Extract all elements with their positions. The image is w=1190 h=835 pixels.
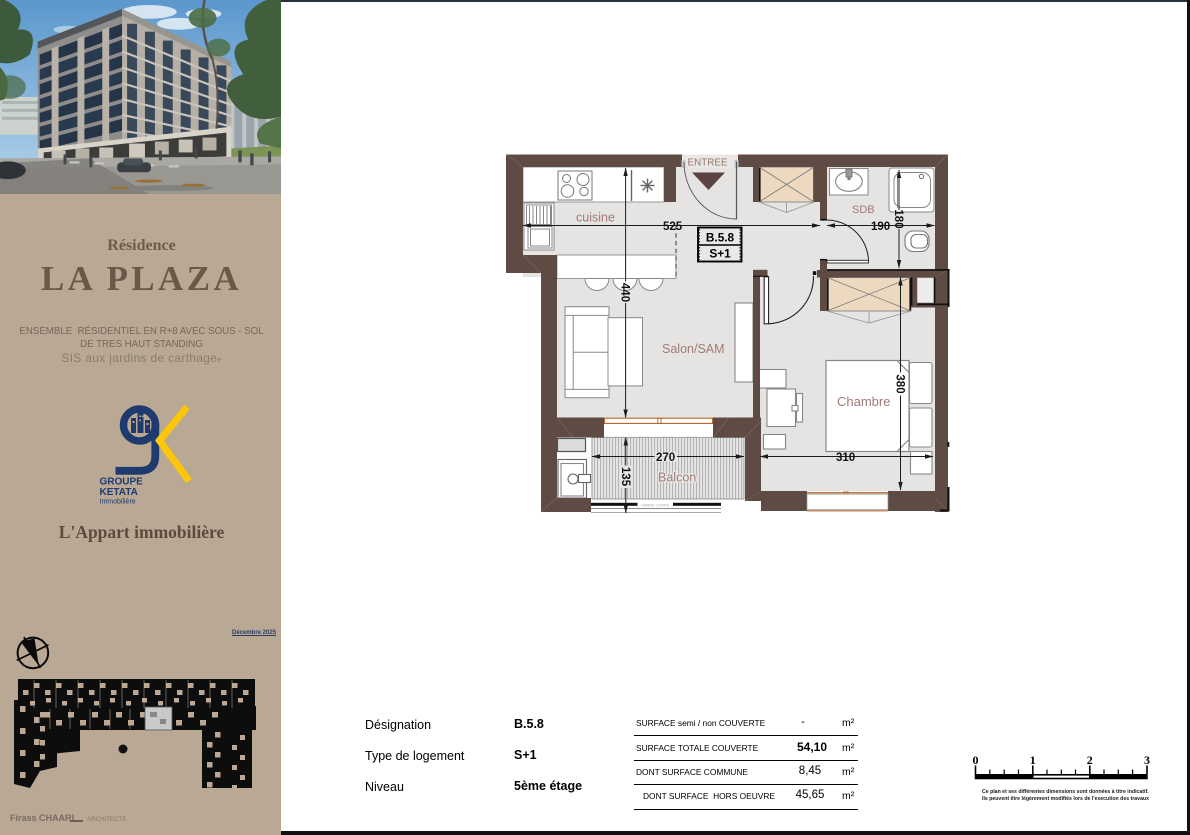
svg-text:GARDE CORPS: GARDE CORPS [641,504,670,508]
svg-text:270: 270 [656,452,675,464]
svg-text:310: 310 [836,452,855,464]
svg-text:Chambre: Chambre [837,394,890,409]
svg-text:Salon/SAM: Salon/SAM [662,342,725,356]
svg-text:Balcon: Balcon [658,471,696,485]
svg-text:525: 525 [663,221,683,233]
svg-text:190: 190 [871,221,890,233]
svg-text:SDB: SDB [852,204,875,216]
svg-text:cuisine: cuisine [576,211,615,225]
svg-text:380: 380 [894,374,906,393]
svg-text:S+1: S+1 [709,247,731,261]
svg-text:B.5.8: B.5.8 [706,231,735,245]
svg-text:135: 135 [619,467,631,487]
svg-text:180: 180 [892,209,904,228]
svg-text:440: 440 [619,283,631,302]
svg-text:ENTREE: ENTREE [688,158,728,169]
